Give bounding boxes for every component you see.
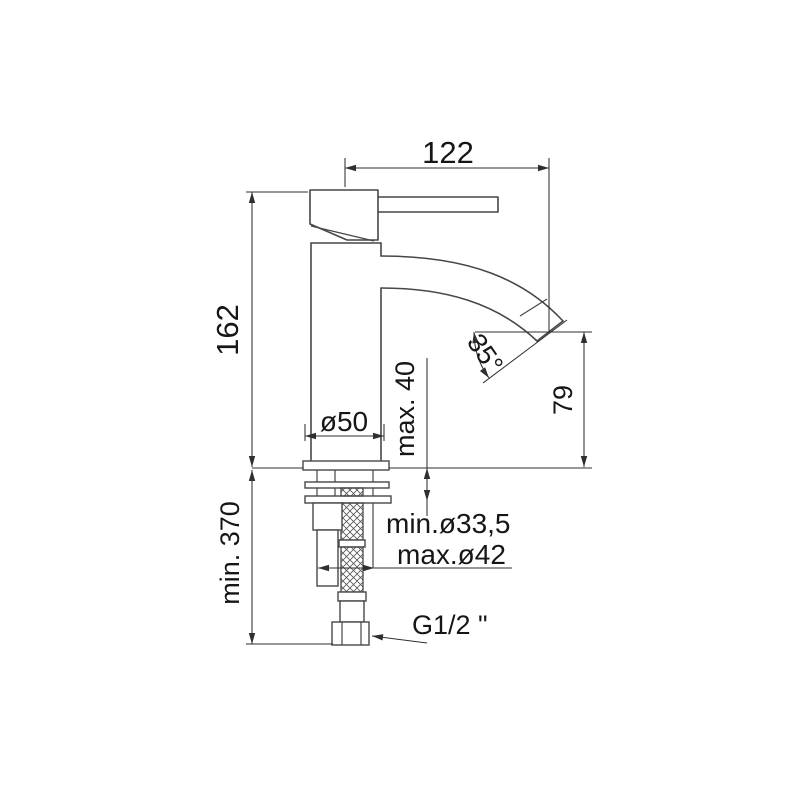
dim-spout-reach-label: 122 — [422, 135, 474, 170]
dim-max-hole-label: max.ø42 — [397, 539, 506, 570]
spout-end-face — [537, 321, 563, 341]
handle-head — [310, 190, 378, 240]
braided-hose — [341, 547, 363, 592]
left-tube-nut — [313, 503, 342, 530]
dim-50-arrow-right — [373, 433, 384, 439]
clamp-plate-upper — [305, 482, 389, 488]
threaded-stud-upper — [341, 488, 363, 496]
dim-79-arrow-bottom — [581, 456, 587, 467]
faucet-dimension-drawing: 122 162 min. 370 79 max. 40 ø50 min.ø33,… — [0, 0, 800, 800]
dim-min-clearance-label: min. 370 — [215, 501, 245, 605]
clamp-plate-lower — [305, 496, 391, 503]
dim-370-arrow-top — [249, 470, 255, 481]
dim-min-hole-label: min.ø33,5 — [386, 508, 511, 539]
dim-122-arrow-right — [538, 165, 549, 171]
dim-body-height-label: 162 — [210, 304, 245, 356]
hose-sleeve — [340, 601, 364, 622]
technical-drawing-page: 122 162 min. 370 79 max. 40 ø50 min.ø33,… — [0, 0, 800, 800]
dim-122-arrow-left — [345, 165, 356, 171]
left-tube — [317, 530, 338, 586]
dim-79-arrow-top — [581, 332, 587, 343]
dim-370-arrow-bottom — [249, 633, 255, 644]
aerator-line — [520, 299, 547, 316]
dimension-labels: 122 162 min. 370 79 max. 40 ø50 min.ø33,… — [210, 135, 578, 640]
connection-nut — [332, 622, 369, 645]
dim-40-arrow-bottom — [424, 490, 430, 501]
dim-162-lines — [246, 192, 308, 467]
base-flange — [303, 461, 389, 470]
dim-base-diameter-label: ø50 — [320, 406, 368, 437]
dim-122-lines — [345, 158, 549, 332]
threaded-stud — [341, 503, 363, 540]
hose-ferrule — [338, 592, 366, 601]
dim-max-deck-thickness-label: max. 40 — [390, 361, 420, 457]
dim-thread-label: G1/2 " — [412, 610, 488, 640]
dim-162-arrow-bottom — [249, 456, 255, 467]
handle-lever — [378, 197, 498, 212]
dim-40-arrow-top — [424, 468, 430, 479]
dim-42-arrow-right — [363, 565, 374, 571]
dim-outlet-height-label: 79 — [548, 385, 578, 415]
hose-collar — [339, 540, 365, 547]
dim-spout-angle-label: 35° — [461, 328, 509, 379]
dim-162-arrow-top — [249, 192, 255, 203]
spout-inner-curve — [381, 288, 537, 341]
